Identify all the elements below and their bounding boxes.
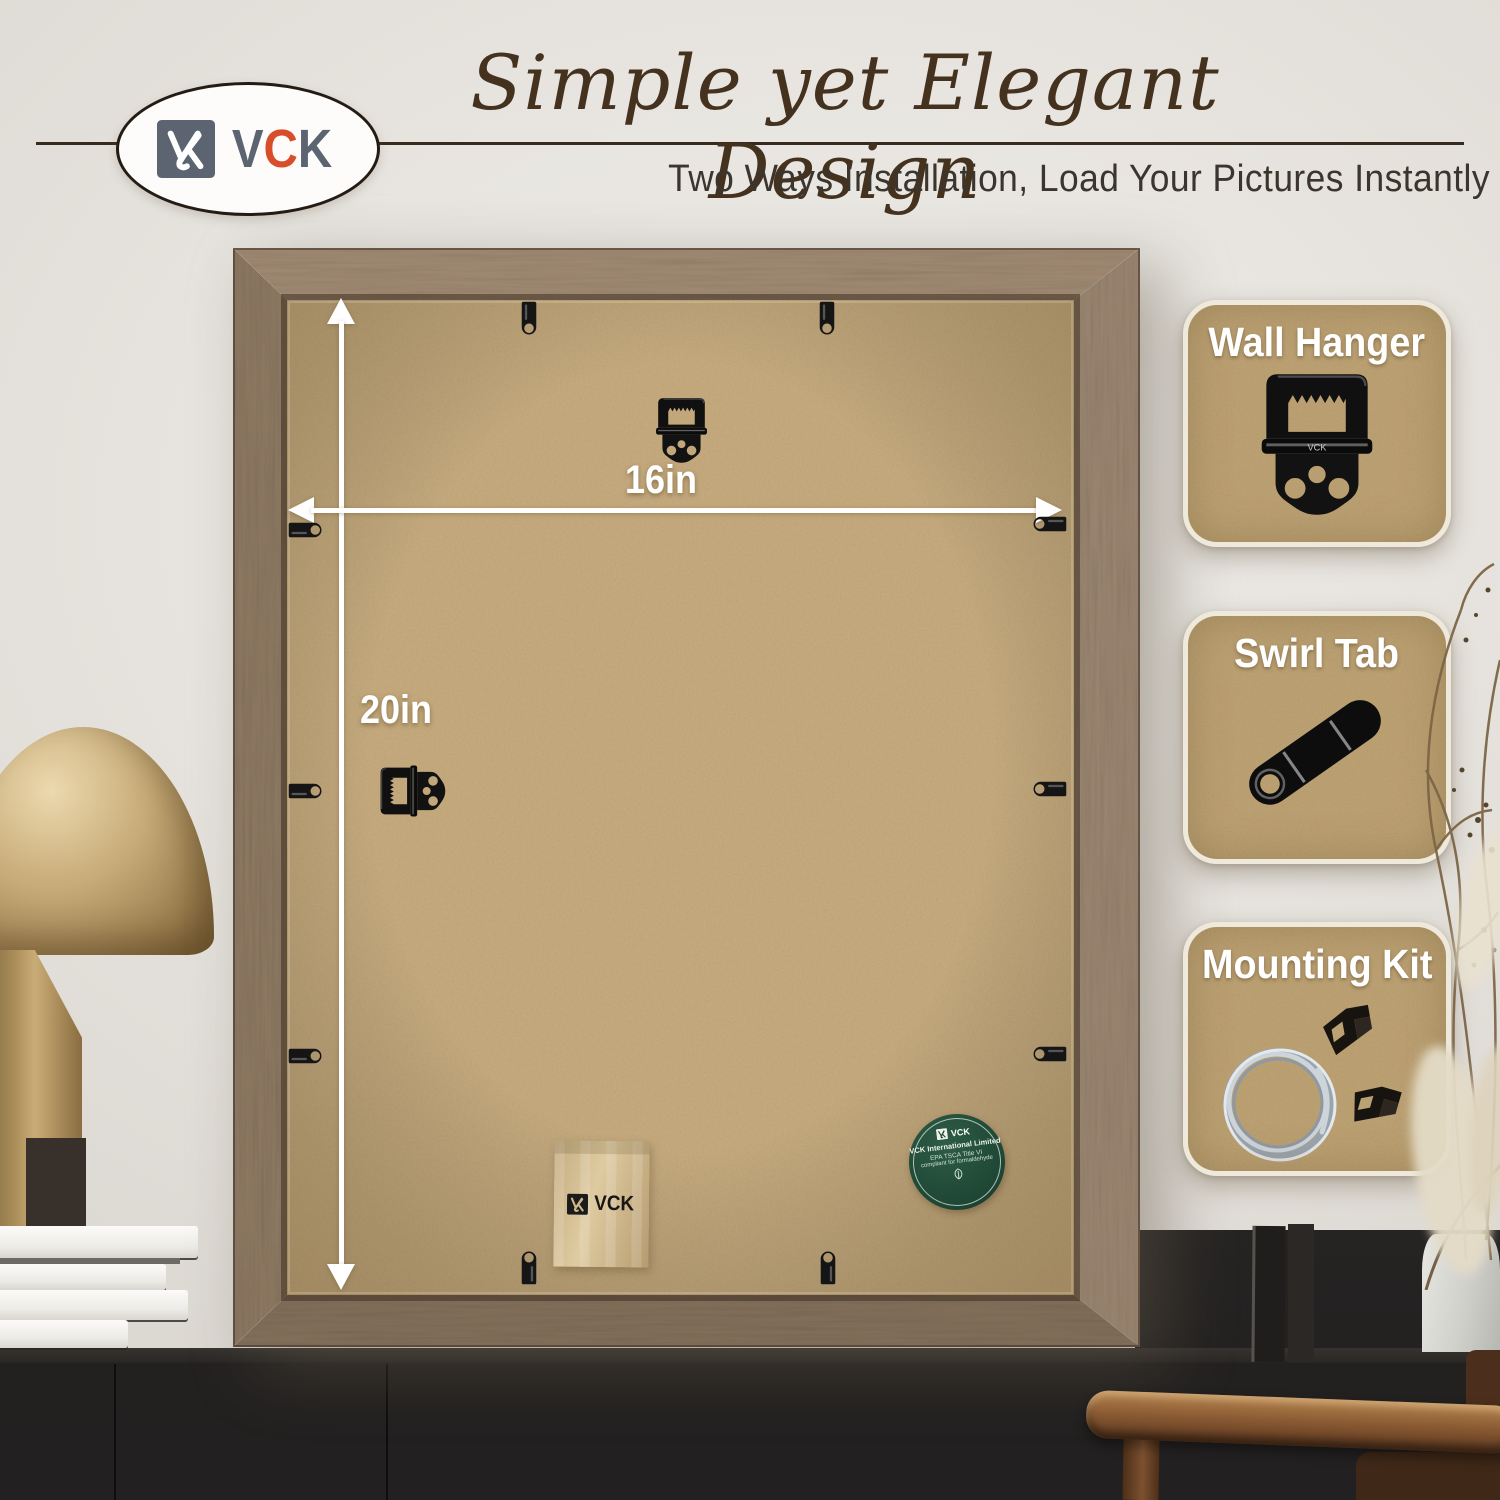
swirl-tab-right	[1030, 1044, 1068, 1064]
wall-hanger-portrait	[655, 397, 708, 467]
swirl-tab-left	[287, 781, 325, 801]
swirl-tab-bottom	[519, 1248, 539, 1286]
sticker-company: VCK International Limited	[909, 1136, 1001, 1156]
sticker-cert-line: compliant for formaldehyde	[921, 1155, 994, 1171]
vck-logo: V C K	[116, 82, 380, 216]
leaf-icon	[952, 1168, 965, 1181]
swirl-tab-right	[1030, 779, 1068, 799]
vck-logomark-icon	[567, 1193, 588, 1214]
book	[0, 1320, 128, 1348]
horizontal-dimension-line	[311, 508, 1039, 513]
height-dimension-label: 20in	[360, 688, 432, 733]
page-subtitle: Two Ways Installation, Load Your Picture…	[616, 158, 1490, 201]
wall-hanger-icon: VCK	[1259, 372, 1375, 524]
callout-title: Wall Hanger	[1209, 319, 1426, 366]
vck-logomark-icon	[157, 120, 215, 178]
logo-letter: K	[298, 118, 332, 180]
envelope-logo: VCK	[567, 1192, 637, 1217]
envelope-brand: VCK	[594, 1192, 634, 1216]
dried-plant	[1366, 520, 1500, 1290]
standing-book	[1251, 1226, 1285, 1362]
product-infographic: V C K Simple yet Elegant Design Two Ways…	[0, 0, 1500, 1500]
sideboard-seam	[114, 1364, 116, 1500]
book	[0, 1264, 166, 1290]
brass-lamp-shade	[0, 727, 214, 955]
frame-wood-right	[1074, 248, 1140, 1347]
swirl-tab-top	[519, 300, 539, 338]
white-book-stack	[0, 1226, 210, 1348]
chair-leather-seat	[1356, 1452, 1500, 1500]
arrow-down-icon	[327, 1264, 355, 1290]
swirl-tab-left	[287, 520, 325, 540]
wall-hanger-landscape	[380, 765, 450, 818]
standing-book	[1288, 1224, 1314, 1362]
callout-card-wall-hanger: Wall Hanger VCK	[1183, 300, 1451, 547]
envelope-flap	[555, 1141, 650, 1155]
chair-leg	[1122, 1438, 1159, 1500]
hardware-envelope: VCK	[553, 1141, 649, 1268]
vck-logomark-icon	[936, 1128, 948, 1140]
sticker-logo: VCK	[936, 1125, 970, 1140]
swirl-tab-right	[1030, 514, 1068, 534]
frame-wood-bottom	[233, 1295, 1140, 1347]
book	[0, 1290, 188, 1320]
swirl-tab-top	[817, 300, 837, 338]
sideboard-seam	[386, 1364, 388, 1500]
frame-wood-left	[233, 248, 287, 1347]
vertical-dimension-line	[339, 321, 344, 1267]
sticker-cert-line: EPA TSCA Title VI	[930, 1149, 983, 1163]
swirl-tab-left	[287, 1046, 325, 1066]
logo-letter: V	[232, 118, 264, 180]
logo-letter: C	[264, 118, 298, 180]
hanger-engraving: VCK	[1308, 442, 1328, 452]
sticker-brand: VCK	[950, 1126, 970, 1138]
frame-wood-top	[233, 248, 1140, 300]
book	[0, 1226, 198, 1258]
swirl-tab-bottom	[818, 1248, 838, 1286]
vck-logo-text: V C K	[232, 118, 332, 180]
